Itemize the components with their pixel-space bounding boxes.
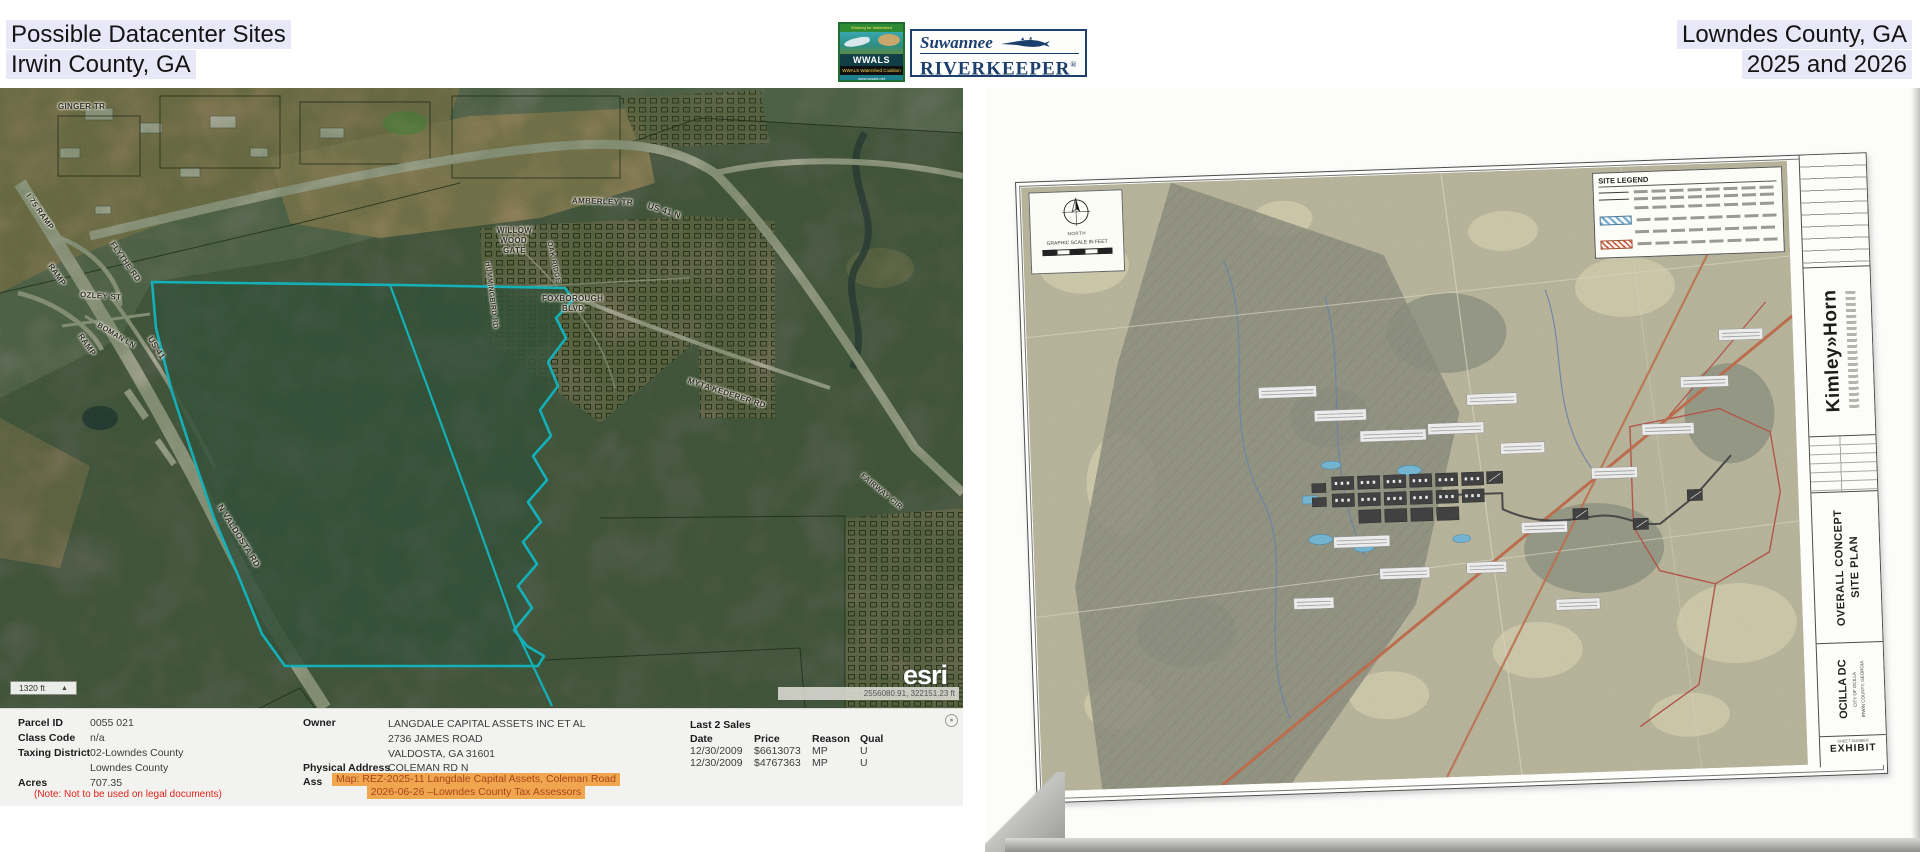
exhibit-cell: SHEET NUMBER EXHIBIT (1820, 735, 1887, 767)
sturgeon-fish-icon (999, 36, 1051, 50)
page-title: Possible Datacenter Sites (6, 20, 291, 50)
owner-line: VALDOSTA, GA 31601 (388, 747, 586, 762)
page-edge-shadow-bottom (1005, 838, 1920, 852)
firm-address-lines (1845, 290, 1859, 410)
fish-art (843, 35, 870, 48)
suwannee-riverkeeper-logo: Suwannee RIVERKEEPER® (910, 29, 1087, 77)
scale-label: 1320 ft (19, 683, 45, 693)
sales-header-row: DatePriceReasonQual (690, 733, 890, 745)
graphic-scale-caption: GRAPHIC SCALE IN FEET (1031, 238, 1123, 247)
parcel-map-panel: GINGER TRI 75 RAMPRAMPRAMPFLYTHE RDOZLEY… (0, 88, 963, 805)
site-legend-title: SITE LEGEND (1598, 170, 1776, 187)
header-years-text: 2025 and 2026 (1742, 50, 1912, 79)
exhibit-label: EXHIBIT (1820, 742, 1886, 755)
map-source-line: 2026-06-26 –Lowndes County Tax Assessors (367, 786, 586, 799)
road-label: FOXBOROUGH (542, 294, 603, 303)
aerial-map-art (0, 88, 963, 708)
page-subtitle: Irwin County, GA (6, 50, 291, 80)
wwals-logo-art (840, 32, 903, 54)
site-legend-box: SITE LEGEND (1592, 166, 1785, 259)
project-county: IRWIN COUNTY, GEORGIA (1859, 661, 1866, 717)
sales-title: Last 2 Sales (690, 719, 890, 731)
page-title-text: Possible Datacenter Sites (6, 20, 291, 49)
map-scale-bar: 1320 ft ▲ (10, 681, 77, 695)
map-source-highlight: Map: REZ-2025-11 Langdale Capital Assets… (298, 773, 654, 799)
legal-note: (Note: Not to be used on legal documents… (34, 789, 222, 800)
sales-rows: 12/30/2009$6613073MPU12/30/2009$4767363M… (690, 745, 890, 769)
road-label: GATE (503, 246, 526, 255)
sales-row: 12/30/2009$6613073MPU (690, 745, 890, 757)
site-plan-sheet: NORTH GRAPHIC SCALE IN FEET SITE LEGEND … (1015, 152, 1888, 803)
road-label: BLVD (562, 304, 584, 313)
page-subtitle-text: Irwin County, GA (6, 50, 196, 79)
sheet-title-cell: OVERALL CONCEPT SITE PLAN (1811, 492, 1882, 645)
wwals-logo-url: www.wwals.net (840, 75, 903, 82)
site-plan-panel: NORTH GRAPHIC SCALE IN FEET SITE LEGEND … (985, 88, 1920, 852)
north-arrow-icon: ▲ (61, 685, 68, 692)
map-source-line: Map: REZ-2025-11 Langdale Capital Assets… (332, 773, 620, 786)
firm-logo-cell: Kimley»Horn (1803, 266, 1875, 437)
sales-table: Last 2 Sales DatePriceReasonQual 12/30/2… (690, 719, 890, 769)
owner-line: LANGDALE CAPITAL ASSETS INC ET AL (388, 717, 586, 732)
north-arrow-box: NORTH GRAPHIC SCALE IN FEET (1028, 189, 1125, 274)
wwals-logo-wordmark: WWALS (840, 54, 903, 66)
legend-row (1600, 234, 1778, 249)
owner-line: 2736 JAMES ROAD (388, 732, 586, 747)
wwals-logo-coalition: WWALS Watershed Coalition (840, 66, 903, 75)
island-art (878, 34, 900, 46)
north-label: NORTH (1031, 229, 1123, 237)
owner-values: LANGDALE CAPITAL ASSETS INC ET AL2736 JA… (388, 717, 586, 762)
concept-plan-map (1021, 161, 1808, 791)
header-county-text: Lowndes County, GA (1677, 20, 1912, 49)
road-label: GINGER TR (58, 102, 105, 111)
seal-stamp-cell (1809, 435, 1877, 494)
graphic-scale-bar (1031, 247, 1123, 256)
header-left: Possible Datacenter Sites Irwin County, … (6, 20, 291, 80)
parcel-info-panel: Parcel ID0055 021Class Coden/aTaxing Dis… (0, 708, 963, 806)
project-name: OCILLA DC (1836, 660, 1850, 720)
slide-header: Possible Datacenter Sites Irwin County, … (0, 0, 1920, 88)
road-label: WILLOW (497, 226, 532, 235)
road-label: WOOD (500, 236, 527, 245)
header-right: Lowndes County, GA 2025 and 2026 (1677, 20, 1912, 80)
page-edge-shadow-right (1911, 88, 1920, 852)
registered-mark: ® (1070, 60, 1077, 69)
revision-table (1800, 153, 1870, 268)
owner-label: Owner (303, 717, 336, 729)
map-coordinates: 2556080.91, 322151.23 ft (778, 687, 959, 700)
collapse-panel-icon[interactable]: ● (945, 714, 958, 727)
project-city: CITY OF OCILLA (1852, 672, 1858, 707)
project-cell: OCILLA DC CITY OF OCILLA IRWIN COUNTY, G… (1817, 642, 1886, 737)
header-years: 2025 and 2026 (1677, 50, 1912, 80)
sheet-title-line2: SITE PLAN (1847, 536, 1861, 598)
riverkeeper-wordmark: RIVERKEEPER® (920, 53, 1079, 79)
aerial-map[interactable]: GINGER TRI 75 RAMPRAMPRAMPFLYTHE RDOZLEY… (0, 88, 963, 708)
site-legend-rows (1599, 185, 1779, 249)
suwannee-wordmark: Suwannee (920, 33, 993, 53)
kimley-horn-logo: Kimley»Horn (1819, 290, 1845, 413)
wwals-logo-tagline: Working for Watershed Conservation (840, 24, 903, 32)
sheet-title-line1: OVERALL CONCEPT (1831, 509, 1847, 626)
wwals-logo: Working for Watershed Conservation WWALS… (838, 22, 905, 82)
header-county: Lowndes County, GA (1677, 20, 1912, 50)
compass-icon (1058, 194, 1093, 229)
sales-row: 12/30/2009$4767363MPU (690, 757, 890, 769)
